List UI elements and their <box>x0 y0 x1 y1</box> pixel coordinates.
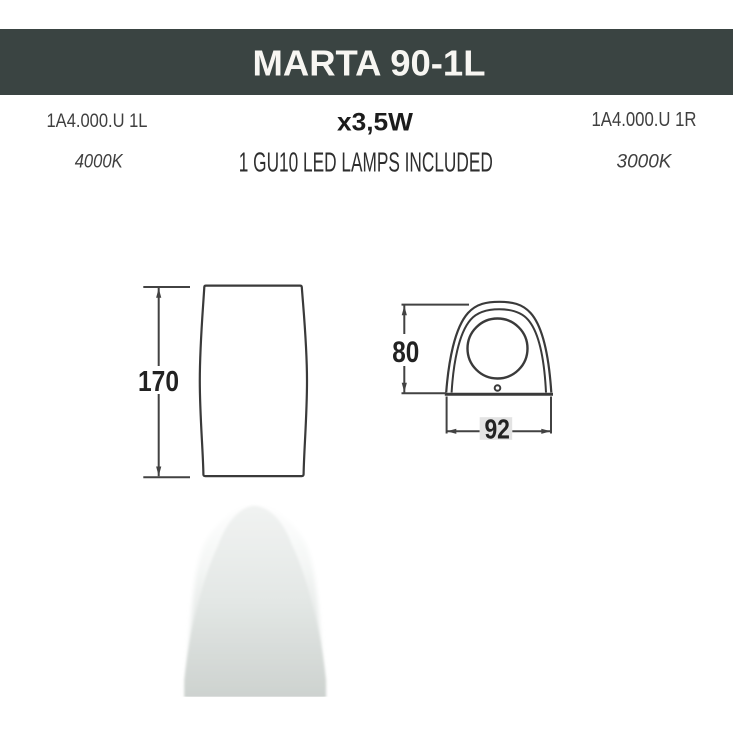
svg-text:92: 92 <box>484 414 510 445</box>
svg-text:1A4.000.U 1R: 1A4.000.U 1R <box>592 109 697 131</box>
svg-text:3000K: 3000K <box>617 150 673 172</box>
svg-text:4000K: 4000K <box>75 151 124 173</box>
svg-text:x3,5W: x3,5W <box>337 108 413 136</box>
svg-text:1 GU10 LED LAMPS INCLUDED: 1 GU10 LED LAMPS INCLUDED <box>239 146 493 177</box>
svg-text:MARTA 90-1L: MARTA 90-1L <box>253 43 486 84</box>
svg-text:1A4.000.U 1L: 1A4.000.U 1L <box>47 110 148 132</box>
svg-text:170: 170 <box>138 366 179 398</box>
svg-text:80: 80 <box>392 336 419 369</box>
